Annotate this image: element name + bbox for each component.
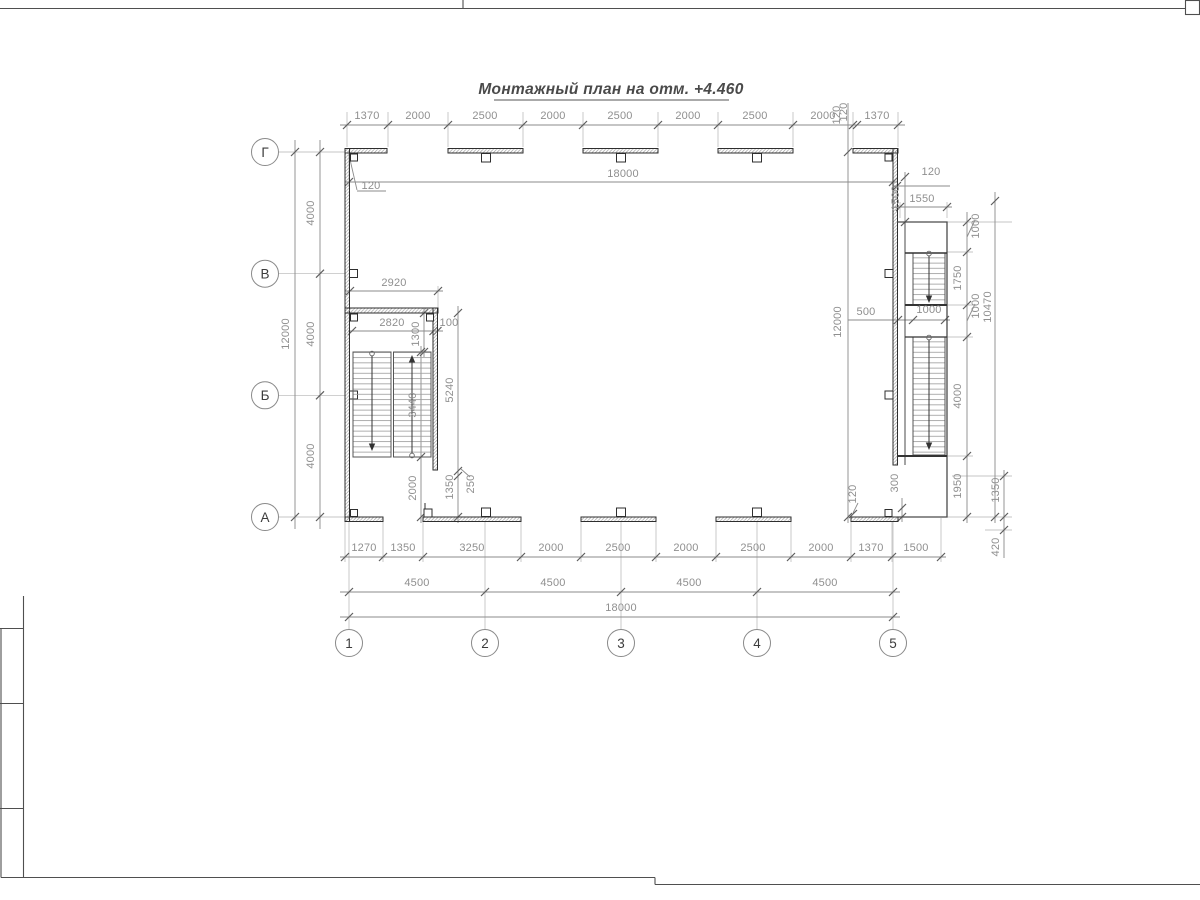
dim-label: 10470 [982,291,994,323]
dim-label: 4000 [952,383,964,408]
dim-label: 1500 [903,542,928,554]
drawing-title: Монтажный план на отм. +4.460 [478,81,743,100]
axis-bubble: Б [252,382,279,409]
sheet-frame [0,0,1200,885]
dim-label: 2500 [472,110,497,122]
dim-label: 3440 [407,392,419,417]
dim-label: 2500 [605,542,630,554]
axis-bubble: А [252,504,279,531]
dim-label: 1350 [444,474,456,499]
dim-label: 4500 [540,577,565,589]
dim-label: 4000 [305,321,317,346]
dim-label: 2000 [405,110,430,122]
dim-label: 18000 [607,168,639,180]
dim-label: 300 [889,474,901,493]
dim-label: 1370 [354,110,379,122]
dim-label: 4000 [305,200,317,225]
top-wall-panel [853,149,898,154]
dim-label: 12000 [280,318,292,350]
dim-label: 2500 [740,542,765,554]
walls [345,149,898,522]
dim-label: 2000 [673,542,698,554]
top-wall-panel [583,149,658,154]
dim-label: 2000 [540,110,565,122]
dim-label: 1950 [952,473,964,498]
dim-label: 1500 [890,185,902,210]
axis-label: 1 [345,636,353,651]
axis-bubble: Г [252,139,279,166]
top-wall-panel [718,149,793,154]
bottom-wall-panel [581,517,656,522]
interior-staircase [353,351,431,458]
axis-label: 5 [889,636,897,651]
dim-label: 4500 [676,577,701,589]
axis-label: Б [261,388,270,403]
dim-label: 2000 [538,542,563,554]
frame-corner-box [1186,1,1200,15]
dim-label: 2500 [742,110,767,122]
left-wall [345,149,350,522]
dim-label: 1300 [410,321,422,346]
dim-label: 18000 [605,602,637,614]
dim-label: 1000 [970,293,982,318]
dim-label: 1350 [390,542,415,554]
dim-label: 1550 [909,193,934,205]
dim-label: 2000 [407,475,419,500]
dim-label: 100 [440,317,459,329]
dim-label: 120 [922,166,941,178]
dim-label: 420 [990,538,1002,557]
dim-label: 1750 [952,265,964,290]
dim-label: 1370 [858,542,883,554]
axis-bubble: 1 [336,630,363,657]
axis-label: 3 [617,636,625,651]
dim-label: 120 [831,106,843,125]
dim-label: 120 [362,180,381,192]
bottom-wall-panel [423,517,521,522]
axis-bubble: 5 [880,630,907,657]
axis-label: Г [261,145,269,160]
bottom-wall-panel [851,517,898,522]
dim-label: 2500 [607,110,632,122]
top-wall-panel [345,149,387,154]
axis-label: А [260,510,269,525]
dim-label: 2000 [675,110,700,122]
top-wall-panel [448,149,523,154]
dim-label: 4500 [812,577,837,589]
axis-label: В [260,267,269,282]
dim-label: 4500 [404,577,429,589]
stairwell-wall-right [433,308,438,470]
dim-label: 2820 [379,317,404,329]
axis-bubble: В [252,260,279,287]
dim-label: 250 [465,475,477,494]
drawing-sheet: Монтажный план на отм. +4.460 [0,0,1200,900]
page-title: Монтажный план на отм. +4.460 [478,81,743,98]
dim-label: 12000 [832,306,844,338]
dim-label: 1350 [990,477,1002,502]
axis-bubble: 2 [472,630,499,657]
stairwell-wall-top [345,308,438,313]
dim-label: 5240 [444,377,456,402]
floor-plan-drawing: Монтажный план на отм. +4.460 [0,0,1200,900]
dim-label: 1000 [916,304,941,316]
dim-label: 1270 [351,542,376,554]
dim-label: 1370 [864,110,889,122]
column-markers [350,154,894,518]
dim-label: 2000 [808,542,833,554]
dim-label: 1000 [970,213,982,238]
bottom-wall-panel [345,517,383,522]
axis-label: 2 [481,636,489,651]
axis-bubble: 4 [744,630,771,657]
dim-label: 3250 [459,542,484,554]
axis-label: 4 [753,636,761,651]
dim-label: 2920 [381,277,406,289]
external-staircase [897,222,947,517]
axis-bubble: 3 [608,630,635,657]
dim-label: 500 [857,306,876,318]
dim-label: 4000 [305,443,317,468]
bottom-wall-panel [716,517,791,522]
dim-label: 120 [847,485,859,504]
